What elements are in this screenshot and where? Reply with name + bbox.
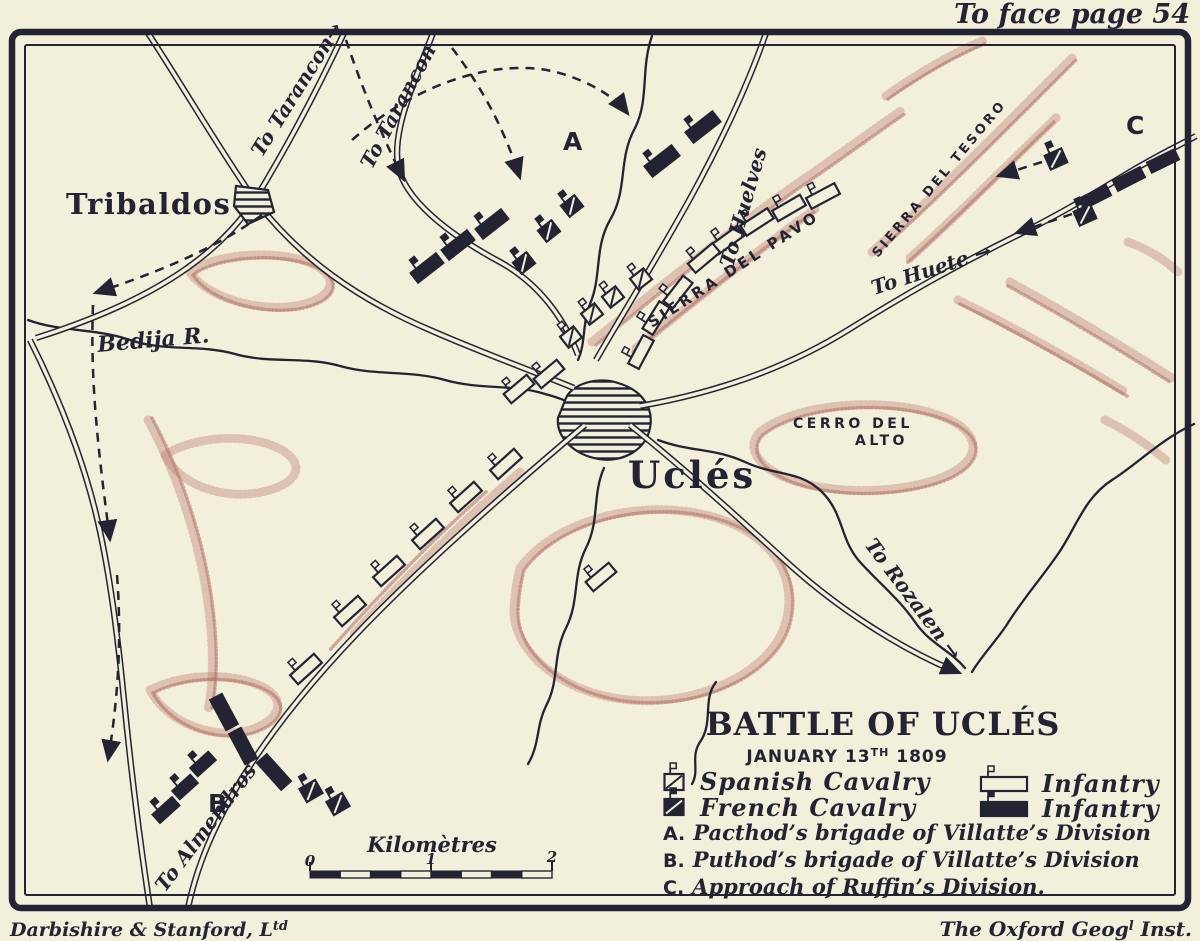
ucles-town-area	[558, 380, 651, 459]
credit-left: Darbishire & Stanford, Ltd	[9, 919, 288, 941]
label-cerro-del-alto-2: ALTO	[855, 433, 908, 449]
label-ucles: Uclés	[628, 453, 756, 497]
legend-label-spanish-cavalry: Spanish Cavalry	[700, 767, 931, 796]
label-marker-b: B	[208, 789, 227, 818]
legend-note-b: B.Puthod’s brigade of Villatte’s Divisio…	[663, 847, 1140, 872]
legend-label-infantry-french: Infantry	[1041, 794, 1161, 823]
label-cerro-del-alto-1: CERRO DEL	[793, 416, 913, 432]
map-title: BATTLE OF UCLÉS	[706, 705, 1061, 743]
plate-note: To face page 54	[954, 0, 1190, 30]
map-subtitle: JANUARY 13TH 1809	[745, 746, 947, 767]
label-marker-c: C	[1126, 111, 1144, 140]
legend-label-french-cavalry: French Cavalry	[699, 793, 917, 822]
label-marker-a: A	[563, 127, 583, 156]
credit-right: The Oxford Geogl Inst.	[940, 917, 1192, 941]
label-tribaldos: Tribaldos	[66, 187, 231, 221]
scale-segments	[310, 871, 552, 878]
legend-note-a: A.Pacthod’s brigade of Villatte’s Divisi…	[663, 820, 1151, 845]
battle-map-svg: To face page 54	[0, 0, 1200, 941]
